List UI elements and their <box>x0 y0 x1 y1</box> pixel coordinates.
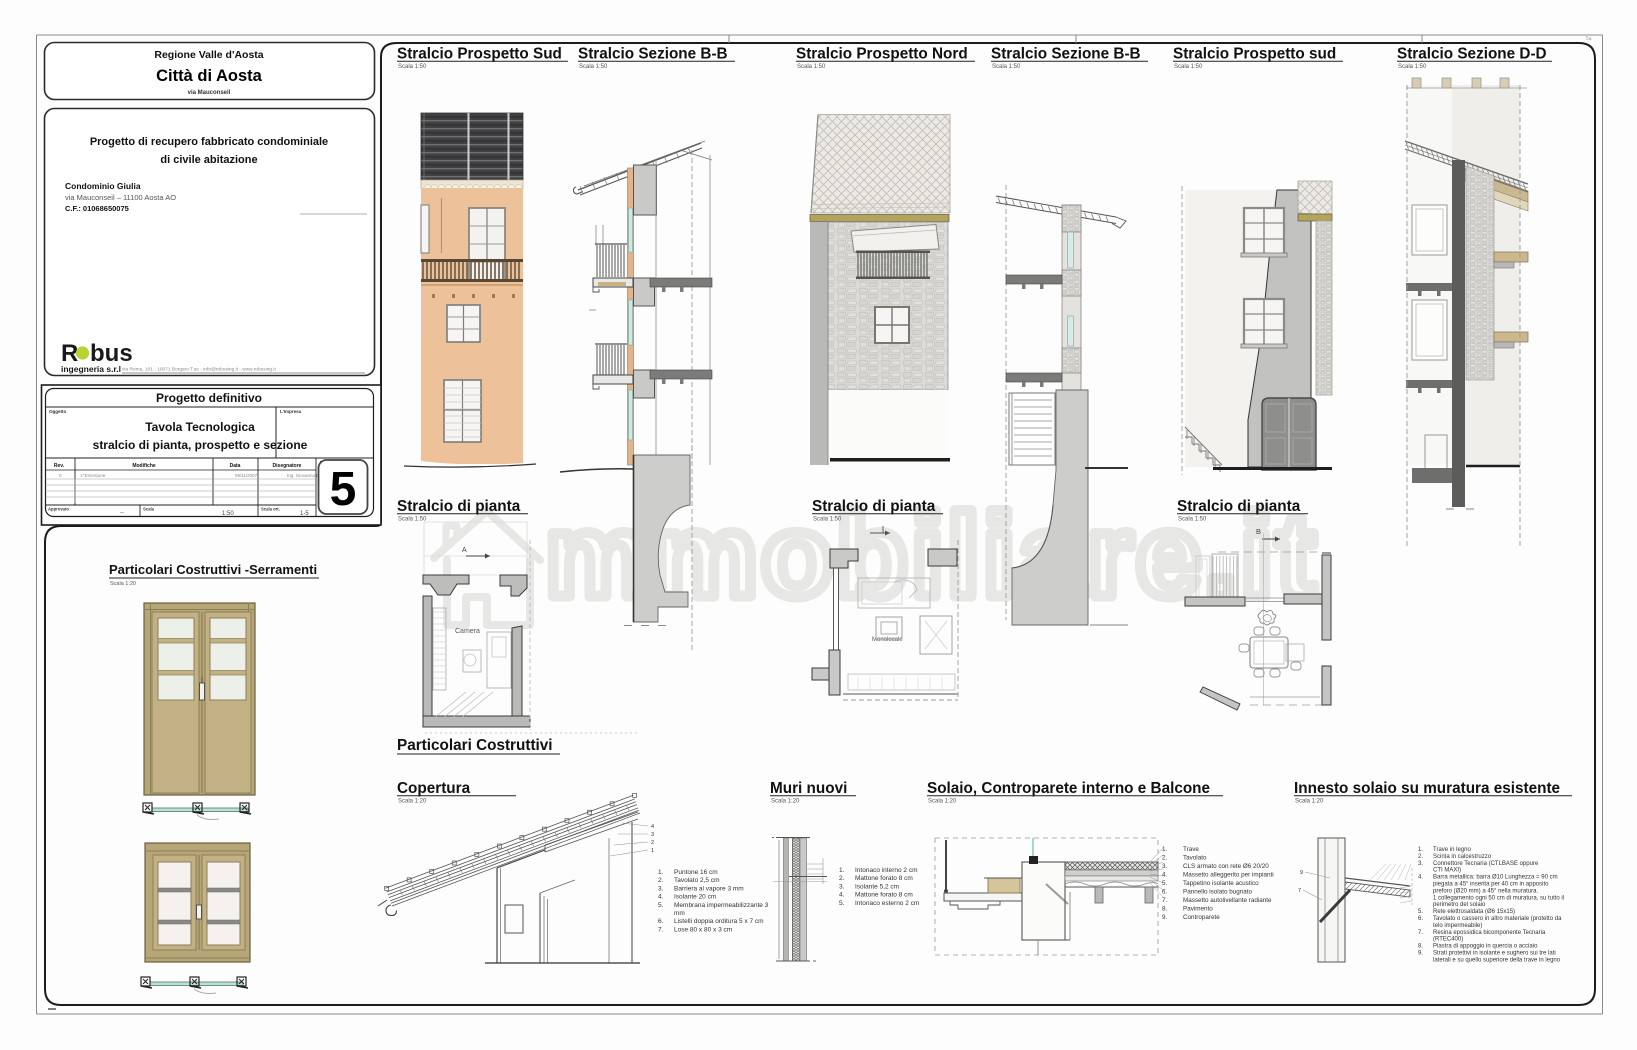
svg-text:3: 3 <box>651 832 654 838</box>
svg-text:Lose 80 x 80 x 3 cm: Lose 80 x 80 x 3 cm <box>674 926 732 933</box>
svg-text:Modifiche: Modifiche <box>132 463 156 469</box>
svg-text:Stralcio Prospetto Nord: Stralcio Prospetto Nord <box>796 46 968 63</box>
svg-text:C.F.: 01068650075: C.F.: 01068650075 <box>65 204 129 213</box>
svg-text:Oggetto: Oggetto <box>49 409 66 414</box>
svg-text:Solaio, Controparete interno e: Solaio, Controparete interno e Balcone <box>927 780 1210 797</box>
svg-text:9.: 9. <box>1162 914 1168 921</box>
svg-text:1.: 1. <box>1418 847 1423 853</box>
svg-text:Connettore Tecnaria (CTLBASE o: Connettore Tecnaria (CTLBASE oppure <box>1433 861 1539 867</box>
svg-text:1.: 1. <box>839 867 845 874</box>
svg-text:Scala 1:50: Scala 1:50 <box>1174 64 1203 70</box>
svg-text:Strati protettivi in isolante: Strati protettivi in isolante e sughero … <box>1433 951 1556 957</box>
svg-text:Massetto autolivellante radian: Massetto autolivellante radiante <box>1183 897 1272 904</box>
svg-text:5.: 5. <box>658 902 664 909</box>
svg-text:mm: mm <box>674 910 685 917</box>
svg-text:ingegneria s.r.l: ingegneria s.r.l <box>61 364 121 374</box>
svg-text:via Mauconseil – 11100 Aosta A: via Mauconseil – 11100 Aosta AO <box>65 193 176 202</box>
svg-text:2.: 2. <box>839 875 845 882</box>
svg-text:7: 7 <box>1298 888 1301 894</box>
svg-text:Scala 1:50: Scala 1:50 <box>398 517 427 523</box>
svg-text:CLS armato con rete Ø6 20/20: CLS armato con rete Ø6 20/20 <box>1183 863 1269 870</box>
svg-text:3.: 3. <box>839 883 845 890</box>
svg-text:Regione Valle d'Aosta: Regione Valle d'Aosta <box>154 49 263 61</box>
svg-text:2.: 2. <box>1162 855 1168 862</box>
svg-text:Scala 1:20: Scala 1:20 <box>928 799 957 805</box>
svg-text:Tavolato: Tavolato <box>1183 855 1207 862</box>
svg-text:Particolari Costruttivi: Particolari Costruttivi <box>397 737 553 754</box>
svg-text:8.: 8. <box>1418 944 1423 950</box>
svg-text:Scala: Scala <box>143 507 155 512</box>
svg-text:Stralcio di pianta: Stralcio di pianta <box>1177 498 1301 515</box>
svg-text:Stralcio Sezione B-B: Stralcio Sezione B-B <box>991 46 1141 63</box>
svg-text:R: R <box>61 340 78 367</box>
svg-text:5: 5 <box>330 463 357 516</box>
svg-text:di civile abitazione: di civile abitazione <box>160 154 257 166</box>
svg-text:3.: 3. <box>1418 861 1423 867</box>
svg-text:7.: 7. <box>1418 930 1423 936</box>
svg-text:4.: 4. <box>839 892 845 899</box>
svg-text:Monolocale: Monolocale <box>872 637 903 643</box>
svg-text:Scala 1:50: Scala 1:50 <box>1398 64 1427 70</box>
svg-text:9.: 9. <box>1418 951 1423 957</box>
svg-text:Disegnatore: Disegnatore <box>273 463 302 469</box>
svg-text:Stralcio Sezione D-D: Stralcio Sezione D-D <box>1397 46 1547 63</box>
svg-text:Progetto di recupero fabbricat: Progetto di recupero fabbricato condomin… <box>90 136 328 148</box>
svg-text:Tavola Tecnologica: Tavola Tecnologica <box>145 420 255 434</box>
svg-text:Scala 1:50: Scala 1:50 <box>797 64 826 70</box>
svg-text:Scala 1:20: Scala 1:20 <box>1295 799 1324 805</box>
svg-text:Tappetino isolante acustico: Tappetino isolante acustico <box>1183 880 1259 887</box>
svg-text:laterali e su quello superiore: laterali e su quello superiore della tra… <box>1433 957 1561 963</box>
svg-text:Scala 1:50: Scala 1:50 <box>1178 517 1207 523</box>
svg-text:Scinta in calcestruzzo: Scinta in calcestruzzo <box>1433 854 1492 860</box>
svg-text:3.: 3. <box>1162 863 1168 870</box>
svg-text:via Roma, 101 - 10071 Borgaro: via Roma, 101 - 10071 Borgaro T.se - inf… <box>122 367 276 373</box>
svg-text:Particolari Costruttivi -Serra: Particolari Costruttivi -Serramenti <box>109 562 317 577</box>
svg-text:Stralcio di pianta: Stralcio di pianta <box>812 498 936 515</box>
svg-text:Barriera al vapore 3 mm: Barriera al vapore 3 mm <box>674 885 744 892</box>
svg-text:Puntone 16 cm: Puntone 16 cm <box>674 869 718 876</box>
svg-text:Scala 1:50: Scala 1:50 <box>992 64 1021 70</box>
svg-text:Rev.: Rev. <box>54 463 65 469</box>
svg-text:(RTEC400): (RTEC400) <box>1433 937 1463 943</box>
svg-text:Città di Aosta: Città di Aosta <box>156 67 263 85</box>
svg-text:Barra metallica: barra Ø10 Lun: Barra metallica: barra Ø10 Lunghezza = 9… <box>1433 875 1558 881</box>
svg-text:Listelli doppia orditura 5 x 7: Listelli doppia orditura 5 x 7 cm <box>674 918 764 925</box>
svg-text:Stralcio Sezione B-B: Stralcio Sezione B-B <box>578 46 728 63</box>
svg-text:Controparete: Controparete <box>1183 914 1220 921</box>
svg-text:Muri nuovi: Muri nuovi <box>770 780 847 797</box>
svg-text:Pannello isolato bugnato: Pannello isolato bugnato <box>1183 889 1252 896</box>
svg-text:Trave: Trave <box>1183 846 1199 853</box>
svg-text:2.: 2. <box>658 877 664 884</box>
svg-text:Isolante 20 cm: Isolante 20 cm <box>674 894 716 901</box>
svg-text:A: A <box>462 547 467 554</box>
svg-text:Trave in legno: Trave in legno <box>1433 847 1471 853</box>
svg-text:4.: 4. <box>1162 872 1168 879</box>
svg-text:5.: 5. <box>839 900 845 907</box>
svg-text:Stralcio Prospetto sud: Stralcio Prospetto sud <box>1173 46 1336 63</box>
svg-text:L'Impresa: L'Impresa <box>280 409 302 414</box>
svg-text:5a: 5a <box>1586 36 1592 42</box>
svg-text:1: 1 <box>651 848 654 854</box>
svg-text:Piastra di appoggio in quercia: Piastra di appoggio in quercia o acciaio <box>1433 944 1538 950</box>
svg-text:9: 9 <box>1300 870 1303 876</box>
svg-text:Isolante 5,2 cm: Isolante 5,2 cm <box>855 883 899 890</box>
svg-text:09/11/2007: 09/11/2007 <box>235 473 258 478</box>
svg-text:Stralcio Prospetto Sud: Stralcio Prospetto Sud <box>397 46 562 63</box>
svg-text:piegata a 45° inserita per 40: piegata a 45° inserita per 40 cm in appo… <box>1433 882 1549 888</box>
svg-text:stralcio di pianta, prospetto: stralcio di pianta, prospetto e sezione <box>93 438 308 452</box>
svg-text:6.: 6. <box>1418 916 1423 922</box>
svg-text:CTI MAXI): CTI MAXI) <box>1433 868 1461 874</box>
svg-text:Scala 1:20: Scala 1:20 <box>110 581 136 587</box>
svg-text:Camera: Camera <box>455 628 480 635</box>
svg-text:Mattone forato 8 cm: Mattone forato 8 cm <box>855 875 913 882</box>
svg-text:Data: Data <box>230 463 241 469</box>
svg-text:1^Emissione: 1^Emissione <box>80 473 106 478</box>
svg-text:perimetro del solaio: perimetro del solaio <box>1433 902 1486 908</box>
svg-text:6.: 6. <box>658 918 664 925</box>
svg-text:5.: 5. <box>1418 909 1423 915</box>
svg-text:Scala 1:50: Scala 1:50 <box>398 64 427 70</box>
svg-text:Stralcio di pianta: Stralcio di pianta <box>397 498 521 515</box>
svg-text:Intonaco esterno 2 cm: Intonaco esterno 2 cm <box>855 900 919 907</box>
svg-text:telo impermeabile): telo impermeabile) <box>1433 923 1482 929</box>
svg-text:Copertura: Copertura <box>397 780 471 797</box>
svg-text:Scala 1:50: Scala 1:50 <box>813 517 842 523</box>
svg-text:Innesto solaio su muratura esi: Innesto solaio su muratura esistente <box>1294 780 1560 797</box>
svg-text:6.: 6. <box>1162 889 1168 896</box>
svg-text:1.: 1. <box>1162 846 1168 853</box>
svg-text:1-5: 1-5 <box>300 511 309 517</box>
svg-text:Condominio Giulia: Condominio Giulia <box>65 181 141 191</box>
svg-text:Resina epossidica bicomponente: Resina epossidica bicomponente Tecnaria <box>1433 930 1546 936</box>
svg-text:bus: bus <box>90 340 133 367</box>
svg-text:Scala 1:50: Scala 1:50 <box>579 64 608 70</box>
svg-text:Membrana impermeabilizzante 3: Membrana impermeabilizzante 3 <box>674 902 769 909</box>
svg-text:1:50: 1:50 <box>222 511 234 517</box>
svg-text:2.: 2. <box>1418 854 1423 860</box>
svg-text:4.: 4. <box>658 894 664 901</box>
svg-text:7.: 7. <box>1162 897 1168 904</box>
svg-text:Tavolato 2,5 cm: Tavolato 2,5 cm <box>674 877 720 884</box>
svg-text:2: 2 <box>651 840 654 846</box>
svg-text:preforo (Ø20 mm) a 45° nella m: preforo (Ø20 mm) a 45° nella muratura. <box>1433 888 1538 894</box>
svg-text:8.: 8. <box>1162 906 1168 913</box>
svg-text:Scala 1:20: Scala 1:20 <box>771 799 800 805</box>
svg-text:Mattone forato 8 cm: Mattone forato 8 cm <box>855 892 913 899</box>
svg-text:Rete elettrosaldata (Ø6 15x15): Rete elettrosaldata (Ø6 15x15) <box>1433 909 1515 915</box>
svg-text:B: B <box>1256 527 1261 536</box>
svg-text:Pavimento: Pavimento <box>1183 906 1213 913</box>
svg-text:7.: 7. <box>658 926 664 933</box>
svg-text:Scala 1:20: Scala 1:20 <box>398 799 427 805</box>
svg-text:Progetto definitivo: Progetto definitivo <box>156 391 262 405</box>
svg-text:5.: 5. <box>1162 880 1168 887</box>
svg-text:--: -- <box>120 510 124 516</box>
svg-text:via Mauconseil: via Mauconseil <box>188 90 231 96</box>
svg-text:Massetto alleggerito per impia: Massetto alleggerito per impianti <box>1183 872 1274 879</box>
svg-text:Scala ort.: Scala ort. <box>261 507 280 512</box>
svg-text:1 collegamento ogni 50 cm di m: 1 collegamento ogni 50 cm di muratura, s… <box>1433 895 1564 901</box>
svg-text:1.: 1. <box>658 869 664 876</box>
svg-text:Intonaco interno 2 cm: Intonaco interno 2 cm <box>855 867 918 874</box>
svg-text:4: 4 <box>651 824 654 830</box>
svg-text:3.: 3. <box>658 885 664 892</box>
svg-text:Tavolato o cassero in altro ma: Tavolato o cassero in altro materiale (p… <box>1433 916 1562 922</box>
svg-text:4.: 4. <box>1418 875 1423 881</box>
svg-text:Approvato: Approvato <box>48 507 69 512</box>
